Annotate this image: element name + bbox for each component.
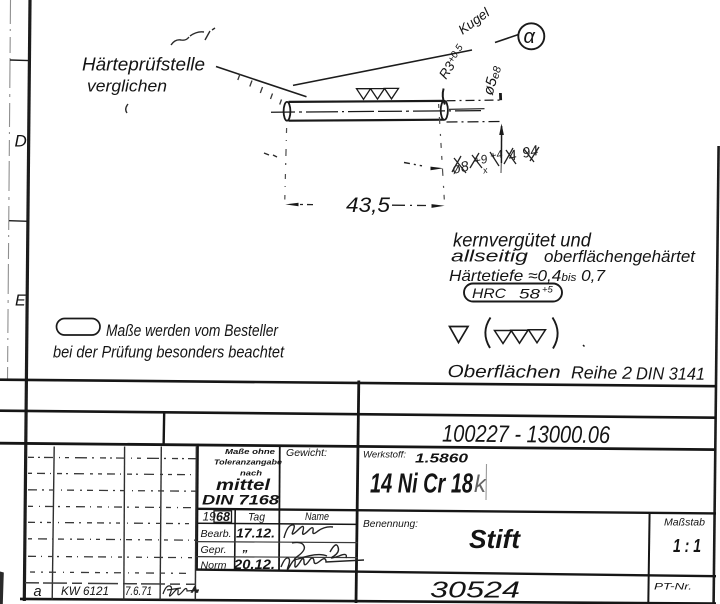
svg-text:30524: 30524 xyxy=(430,577,520,603)
svg-text:verglichen: verglichen xyxy=(87,77,167,96)
svg-text:bei der Prüfung besonders beac: bei der Prüfung besonders beachtet xyxy=(53,344,285,362)
svg-text:1.5860: 1.5860 xyxy=(415,451,469,466)
svg-text:Maße ohne: Maße ohne xyxy=(225,447,275,456)
svg-text:HRC: HRC xyxy=(472,285,507,301)
svg-text:+5: +5 xyxy=(542,285,554,296)
svg-text:„: „ xyxy=(242,541,249,555)
svg-text:Bearb.: Bearb. xyxy=(201,528,232,540)
svg-text:oberflächengehärtet: oberflächengehärtet xyxy=(544,248,696,266)
svg-text:D: D xyxy=(15,132,27,151)
svg-text:KW 6121: KW 6121 xyxy=(61,584,109,598)
svg-text:17.12.: 17.12. xyxy=(236,526,275,541)
svg-text:7.6.71: 7.6.71 xyxy=(125,584,152,598)
svg-text:43,5: 43,5 xyxy=(346,194,390,217)
svg-text:Benennung:: Benennung: xyxy=(363,519,418,530)
svg-text:94: 94 xyxy=(521,143,540,162)
svg-text:20.12.: 20.12. xyxy=(233,557,275,572)
svg-text:DIN 3141: DIN 3141 xyxy=(636,363,705,383)
svg-text:Maße werden vom Besteller: Maße werden vom Besteller xyxy=(106,322,279,340)
svg-text:Toleranzangabe: Toleranzangabe xyxy=(214,458,282,467)
svg-text:allseitig: allseitig xyxy=(451,248,529,266)
svg-text:Norm: Norm xyxy=(201,560,227,572)
svg-text:Maßstab: Maßstab xyxy=(664,518,705,529)
svg-text:Gepr.: Gepr. xyxy=(201,544,227,556)
svg-text:PT-Nr.: PT-Nr. xyxy=(654,582,692,593)
svg-text:Oberflächen: Oberflächen xyxy=(447,361,560,382)
svg-text:Name: Name xyxy=(305,511,329,523)
svg-text:Tag: Tag xyxy=(248,512,266,524)
svg-text:A.: A. xyxy=(191,587,199,594)
svg-text:Gewicht:: Gewicht: xyxy=(286,448,327,459)
svg-text:58: 58 xyxy=(519,286,540,302)
svg-text:Härtetiefe ≈0,4bis 0,7: Härtetiefe ≈0,4bis 0,7 xyxy=(449,268,606,285)
svg-text:100227 - 13000.06: 100227 - 13000.06 xyxy=(442,421,611,449)
svg-text:E: E xyxy=(15,293,26,310)
svg-text:+4: +4 xyxy=(489,148,504,162)
svg-text:α: α xyxy=(524,26,536,48)
svg-text:14 Ni Cr 18: 14 Ni Cr 18 xyxy=(370,468,473,499)
svg-text:Stift: Stift xyxy=(469,524,521,554)
svg-text:Werkstoff:: Werkstoff: xyxy=(363,450,407,460)
svg-text:1 : 1: 1 : 1 xyxy=(673,536,701,556)
svg-text:Reihe 2: Reihe 2 xyxy=(571,362,632,382)
svg-text:Härteprüfstelle: Härteprüfstelle xyxy=(82,55,205,75)
svg-text:a: a xyxy=(34,584,42,600)
svg-text:DIN 7168: DIN 7168 xyxy=(202,492,279,508)
